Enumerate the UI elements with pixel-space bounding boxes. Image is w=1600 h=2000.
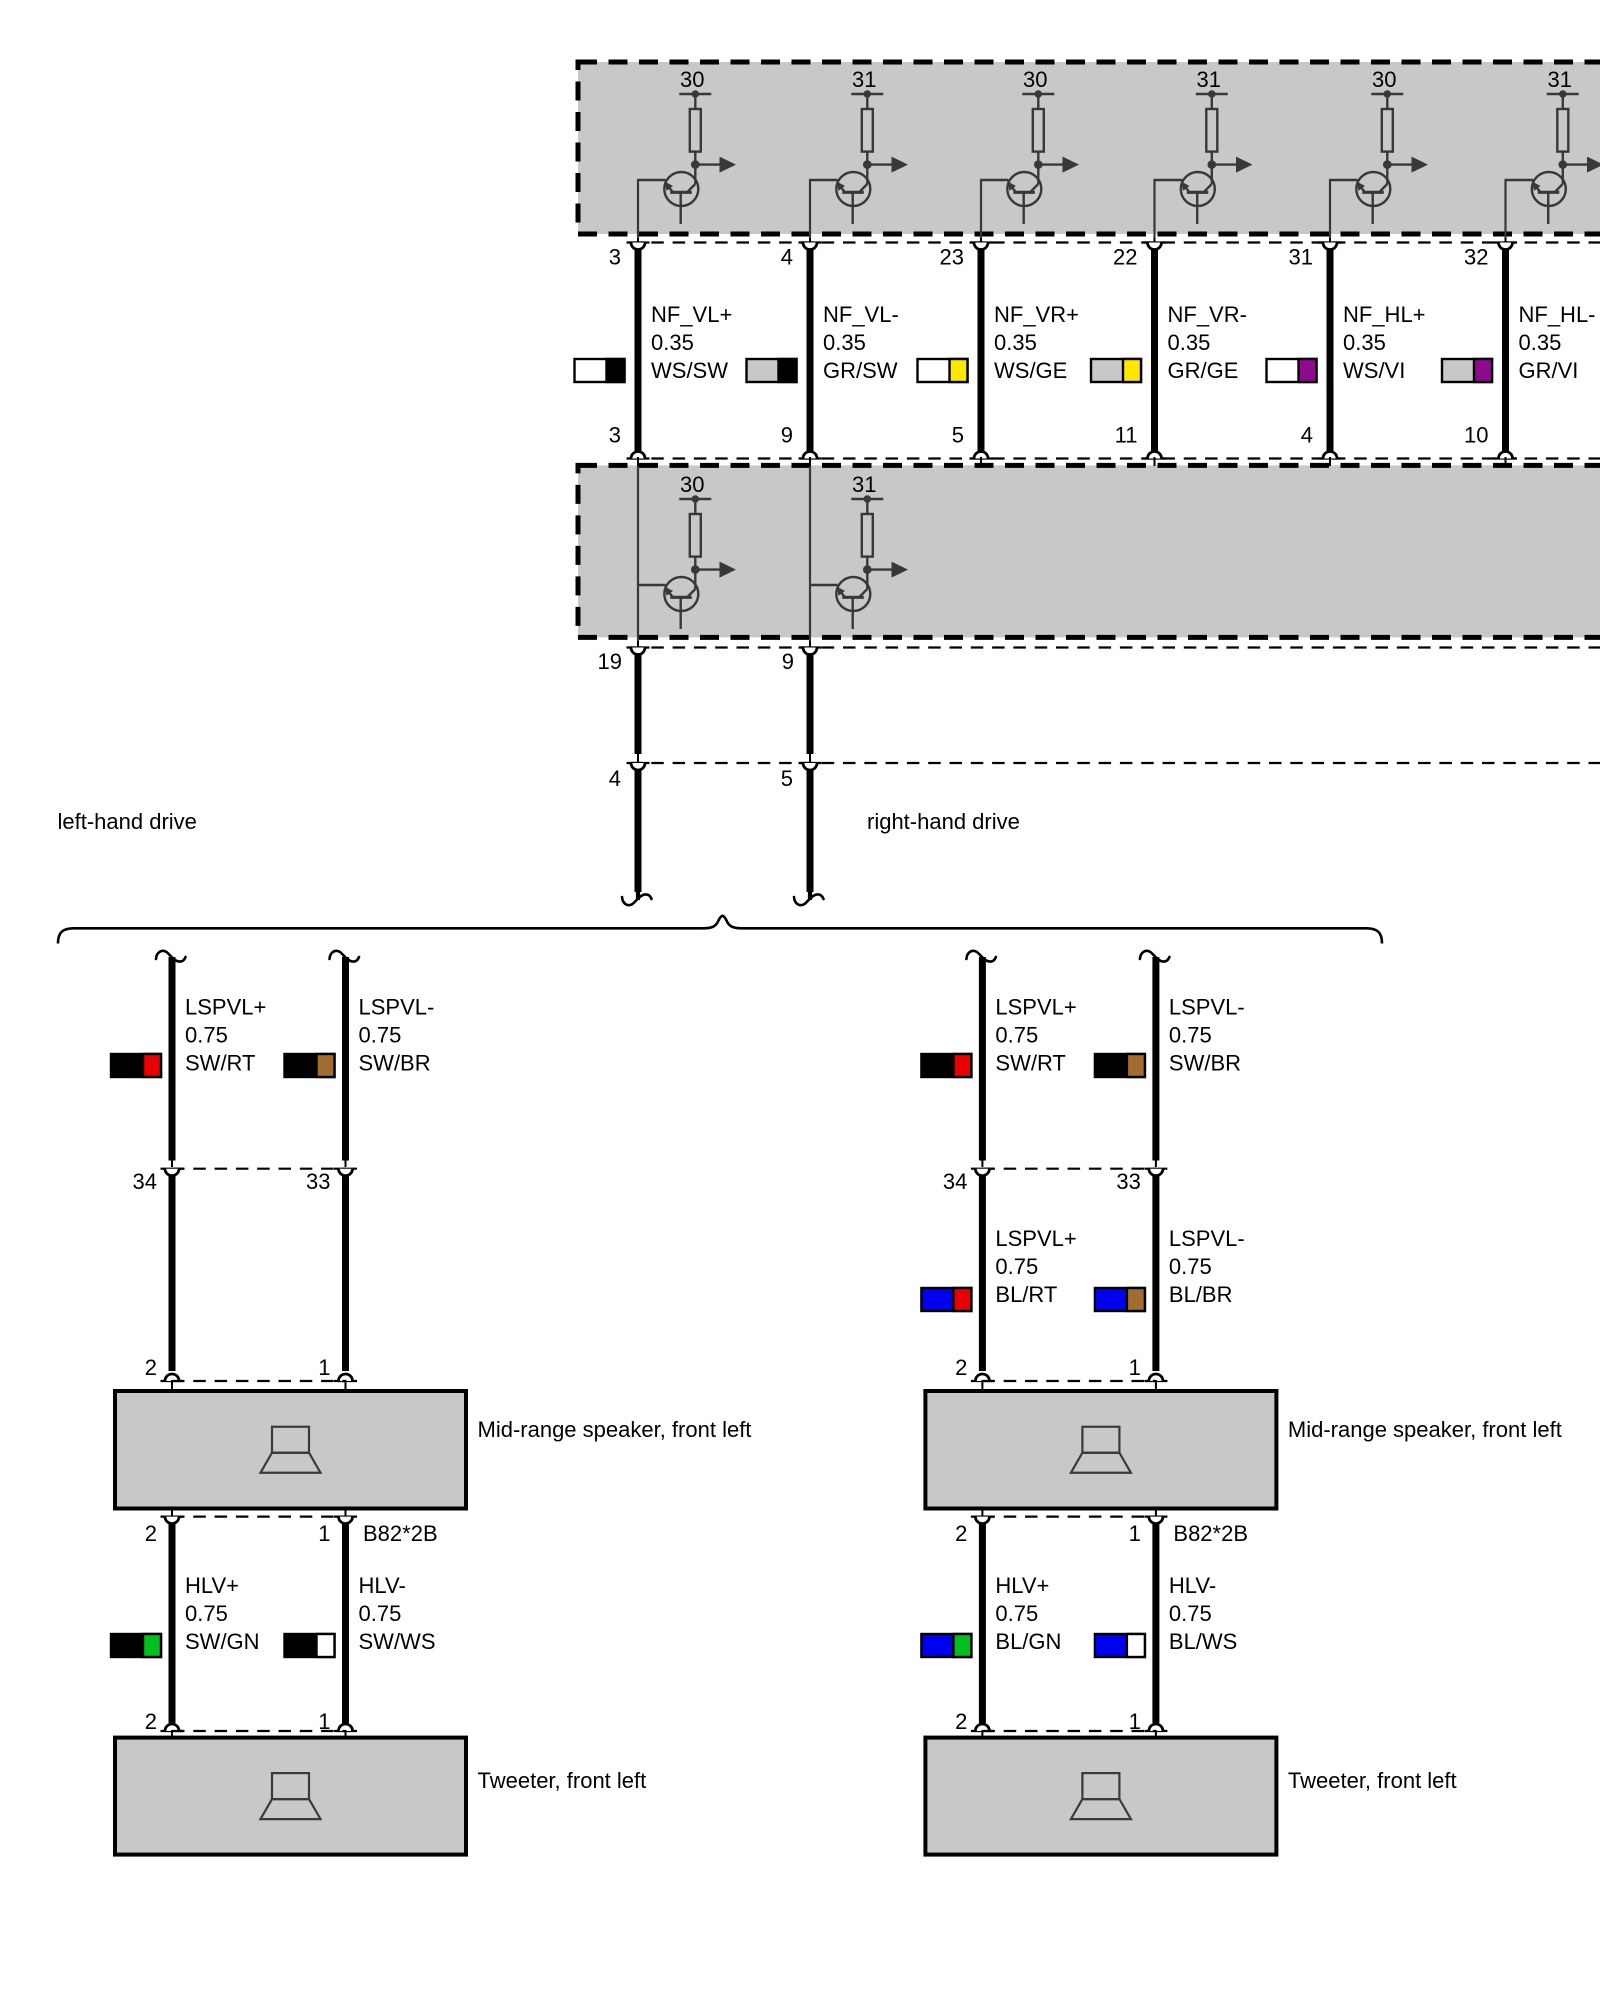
- svg-text:31: 31: [852, 67, 876, 92]
- svg-text:2: 2: [955, 1521, 967, 1546]
- svg-text:GR/SW: GR/SW: [823, 358, 898, 383]
- svg-text:2: 2: [955, 1355, 967, 1380]
- svg-text:SW/BR: SW/BR: [359, 1051, 431, 1076]
- svg-text:3: 3: [609, 245, 621, 270]
- svg-text:30: 30: [680, 67, 704, 92]
- svg-text:4: 4: [781, 245, 793, 270]
- svg-text:5: 5: [952, 423, 964, 448]
- svg-text:WS/VI: WS/VI: [1343, 358, 1405, 383]
- svg-text:0.75: 0.75: [185, 1023, 228, 1048]
- svg-text:GR/VI: GR/VI: [1519, 358, 1579, 383]
- svg-text:10: 10: [1464, 423, 1488, 448]
- svg-text:SW/WS: SW/WS: [359, 1629, 436, 1654]
- svg-text:B82*2B: B82*2B: [363, 1521, 438, 1546]
- svg-text:BL/BR: BL/BR: [1169, 1282, 1233, 1307]
- svg-text:31: 31: [852, 472, 876, 497]
- svg-text:left-hand drive: left-hand drive: [58, 809, 197, 834]
- svg-text:0.35: 0.35: [994, 330, 1037, 355]
- svg-text:HLV-: HLV-: [359, 1573, 406, 1598]
- svg-text:19: 19: [598, 649, 622, 674]
- svg-text:0.75: 0.75: [1169, 1023, 1212, 1048]
- svg-text:1: 1: [1129, 1521, 1141, 1546]
- svg-text:SW/RT: SW/RT: [995, 1051, 1065, 1076]
- svg-text:SW/GN: SW/GN: [185, 1629, 260, 1654]
- svg-text:WS/GE: WS/GE: [994, 358, 1067, 383]
- svg-text:1: 1: [318, 1521, 330, 1546]
- svg-text:LSPVL+: LSPVL+: [185, 995, 266, 1020]
- svg-text:LSPVL-: LSPVL-: [1169, 995, 1245, 1020]
- svg-text:0.75: 0.75: [359, 1023, 402, 1048]
- svg-text:11: 11: [1115, 423, 1138, 448]
- svg-text:LSPVL+: LSPVL+: [995, 995, 1076, 1020]
- svg-text:9: 9: [781, 423, 793, 448]
- svg-text:0.35: 0.35: [823, 330, 866, 355]
- svg-text:BL/RT: BL/RT: [995, 1282, 1057, 1307]
- svg-text:0.75: 0.75: [359, 1601, 402, 1626]
- svg-text:0.75: 0.75: [995, 1601, 1038, 1626]
- svg-text:Tweeter, front left: Tweeter, front left: [1288, 1768, 1457, 1793]
- svg-text:33: 33: [306, 1169, 330, 1194]
- svg-text:SW/RT: SW/RT: [185, 1051, 255, 1076]
- svg-text:2: 2: [145, 1709, 157, 1734]
- svg-text:LSPVL-: LSPVL-: [359, 995, 435, 1020]
- svg-text:9: 9: [782, 649, 794, 674]
- svg-text:2: 2: [955, 1709, 967, 1734]
- svg-text:34: 34: [943, 1169, 967, 1194]
- svg-text:0.35: 0.35: [1343, 330, 1386, 355]
- svg-text:0.75: 0.75: [1169, 1254, 1212, 1279]
- svg-text:0.75: 0.75: [995, 1254, 1038, 1279]
- svg-text:NF_VR-: NF_VR-: [1168, 302, 1247, 327]
- svg-text:0.75: 0.75: [1169, 1601, 1212, 1626]
- svg-text:HLV+: HLV+: [995, 1573, 1049, 1598]
- svg-text:32: 32: [1464, 245, 1488, 270]
- svg-text:0.75: 0.75: [185, 1601, 228, 1626]
- svg-text:4: 4: [1301, 423, 1313, 448]
- svg-text:0.35: 0.35: [1519, 330, 1562, 355]
- svg-text:30: 30: [1372, 67, 1396, 92]
- svg-text:1: 1: [318, 1355, 330, 1380]
- svg-text:right-hand drive: right-hand drive: [867, 809, 1020, 834]
- svg-text:3: 3: [609, 423, 621, 448]
- svg-text:30: 30: [680, 472, 704, 497]
- svg-text:LSPVL+: LSPVL+: [995, 1226, 1076, 1251]
- svg-text:B82*2B: B82*2B: [1173, 1521, 1248, 1546]
- svg-text:31: 31: [1548, 67, 1572, 92]
- svg-text:34: 34: [133, 1169, 157, 1194]
- svg-text:WS/SW: WS/SW: [651, 358, 728, 383]
- svg-text:23: 23: [940, 245, 964, 270]
- svg-text:NF_VL+: NF_VL+: [651, 302, 732, 327]
- svg-text:Mid-range speaker, front left: Mid-range speaker, front left: [1288, 1417, 1562, 1442]
- svg-text:1: 1: [1129, 1355, 1141, 1380]
- svg-text:BL/WS: BL/WS: [1169, 1629, 1237, 1654]
- svg-text:NF_VR+: NF_VR+: [994, 302, 1079, 327]
- svg-text:Mid-range speaker, front left: Mid-range speaker, front left: [478, 1417, 752, 1442]
- svg-text:31: 31: [1197, 67, 1221, 92]
- svg-text:2: 2: [145, 1521, 157, 1546]
- svg-text:22: 22: [1113, 245, 1137, 270]
- svg-text:LSPVL-: LSPVL-: [1169, 1226, 1245, 1251]
- svg-text:33: 33: [1116, 1169, 1140, 1194]
- svg-text:NF_HL+: NF_HL+: [1343, 302, 1426, 327]
- svg-text:4: 4: [609, 766, 621, 791]
- svg-text:NF_HL-: NF_HL-: [1519, 302, 1596, 327]
- svg-text:GR/GE: GR/GE: [1168, 358, 1239, 383]
- svg-text:NF_VL-: NF_VL-: [823, 302, 899, 327]
- svg-text:0.35: 0.35: [1168, 330, 1211, 355]
- svg-text:30: 30: [1023, 67, 1047, 92]
- svg-text:31: 31: [1289, 245, 1313, 270]
- svg-text:SW/BR: SW/BR: [1169, 1051, 1241, 1076]
- svg-text:HLV-: HLV-: [1169, 1573, 1216, 1598]
- svg-text:0.75: 0.75: [995, 1023, 1038, 1048]
- svg-text:BL/GN: BL/GN: [995, 1629, 1061, 1654]
- svg-text:Tweeter, front left: Tweeter, front left: [478, 1768, 647, 1793]
- svg-text:2: 2: [145, 1355, 157, 1380]
- svg-text:0.35: 0.35: [651, 330, 694, 355]
- svg-text:HLV+: HLV+: [185, 1573, 239, 1598]
- svg-text:5: 5: [781, 766, 793, 791]
